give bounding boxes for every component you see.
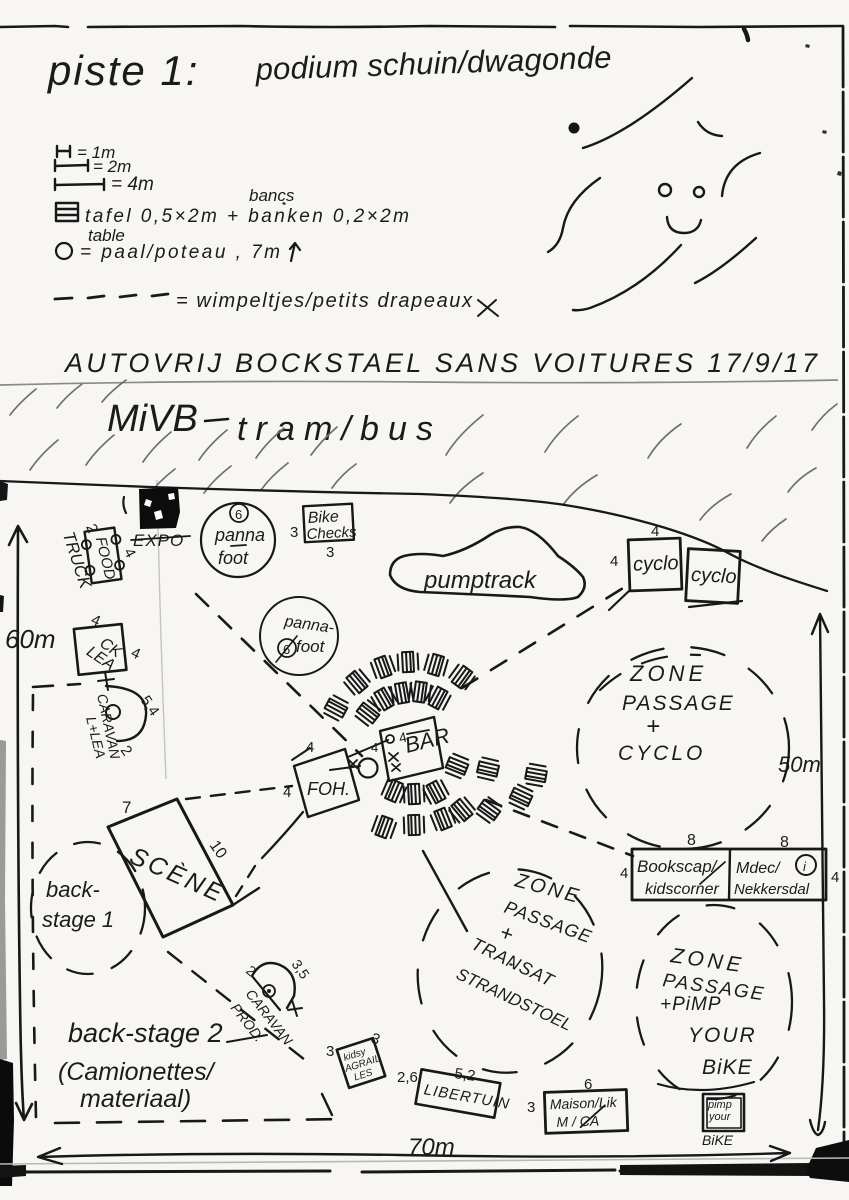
- svg-text:4: 4: [610, 553, 618, 570]
- svg-text:= paal/poteau , 7m: = paal/poteau , 7m: [80, 242, 280, 263]
- svg-text:pumptrack: pumptrack: [423, 567, 538, 594]
- svg-text:tafel 0,5×2m + banken 0,2×2m: tafel 0,5×2m + banken 0,2×2m: [85, 206, 409, 227]
- svg-text:AUTOVRIJ BOCKSTAEL SANS VOITUR: AUTOVRIJ BOCKSTAEL SANS VOITURES 17/9/17: [63, 348, 818, 378]
- svg-text:PASSAGE: PASSAGE: [622, 692, 735, 715]
- svg-text:70m: 70m: [408, 1134, 455, 1161]
- svg-text:2,6: 2,6: [397, 1069, 418, 1086]
- svg-text:CYCLO: CYCLO: [618, 742, 705, 765]
- svg-text:i: i: [803, 859, 807, 874]
- svg-text:+: +: [646, 713, 660, 740]
- svg-text:YOUR: YOUR: [688, 1024, 757, 1047]
- svg-text:Checks: Checks: [306, 524, 357, 544]
- svg-text:your: your: [708, 1111, 732, 1123]
- svg-text:materiaal): materiaal): [80, 1085, 191, 1113]
- svg-text:5,2: 5,2: [453, 1065, 476, 1085]
- svg-text:Bookscap/: Bookscap/: [637, 857, 719, 876]
- svg-text:4: 4: [128, 644, 143, 663]
- svg-text:stage 1: stage 1: [42, 907, 114, 932]
- svg-text:+PiMP: +PiMP: [660, 994, 722, 1015]
- svg-text:ZONE: ZONE: [629, 661, 707, 686]
- svg-text:3: 3: [290, 524, 298, 541]
- svg-text:3: 3: [369, 1030, 383, 1049]
- svg-text:BAR: BAR: [402, 723, 452, 758]
- svg-text:BiKE: BiKE: [702, 1132, 734, 1148]
- svg-text:EXPO: EXPO: [133, 531, 184, 550]
- svg-text:60m: 60m: [5, 624, 56, 654]
- svg-text:BiKE: BiKE: [702, 1056, 753, 1079]
- svg-text:Mdec/: Mdec/: [736, 860, 781, 877]
- svg-text:6: 6: [584, 1076, 592, 1093]
- svg-text:4: 4: [831, 869, 839, 886]
- svg-text:2: 2: [82, 521, 101, 535]
- svg-text:3: 3: [326, 544, 334, 561]
- svg-text:FOOD: FOOD: [92, 535, 119, 581]
- svg-text:50m: 50m: [778, 752, 821, 777]
- svg-text:STRANDSTOEL: STRANDSTOEL: [453, 964, 575, 1034]
- svg-text:panna: panna: [214, 525, 265, 545]
- svg-text:foot: foot: [218, 548, 249, 568]
- svg-text:6: 6: [235, 507, 242, 522]
- svg-text:bancs: bancs: [249, 186, 295, 205]
- svg-text:8: 8: [687, 832, 696, 849]
- svg-text:back-: back-: [46, 877, 100, 902]
- svg-text:+: +: [496, 919, 517, 947]
- svg-text:(Camionettes/: (Camionettes/: [58, 1058, 217, 1086]
- svg-text:cyclo: cyclo: [633, 552, 679, 576]
- svg-text:3: 3: [527, 1099, 535, 1116]
- svg-text:4: 4: [651, 523, 659, 540]
- svg-text:4: 4: [120, 545, 139, 560]
- svg-text:piste 1:: piste 1:: [46, 47, 199, 94]
- svg-text:3: 3: [326, 1043, 334, 1060]
- svg-text:panna-: panna-: [282, 613, 335, 637]
- svg-text:4: 4: [283, 784, 291, 801]
- svg-text:Maison/Lik: Maison/Lik: [549, 1094, 617, 1112]
- svg-text:Nekkersdal: Nekkersdal: [734, 881, 810, 898]
- svg-text:MiVB: MiVB: [107, 398, 198, 440]
- svg-text:= 4m: = 4m: [111, 174, 154, 195]
- svg-text:kidscorner: kidscorner: [645, 881, 719, 898]
- svg-text:8: 8: [780, 834, 789, 851]
- svg-text:7: 7: [122, 798, 131, 817]
- svg-text:back-stage 2: back-stage 2: [68, 1018, 223, 1048]
- svg-text:foot: foot: [296, 637, 326, 656]
- svg-text:FOH.: FOH.: [307, 779, 350, 799]
- svg-text:pimp: pimp: [707, 1099, 732, 1111]
- svg-text:4: 4: [620, 865, 628, 882]
- svg-text:= wimpeltjes/petits drapeaux: = wimpeltjes/petits drapeaux: [176, 290, 473, 312]
- svg-text:cyclo: cyclo: [690, 564, 737, 588]
- svg-text:podium schuin/dwagonde: podium schuin/dwagonde: [254, 40, 612, 87]
